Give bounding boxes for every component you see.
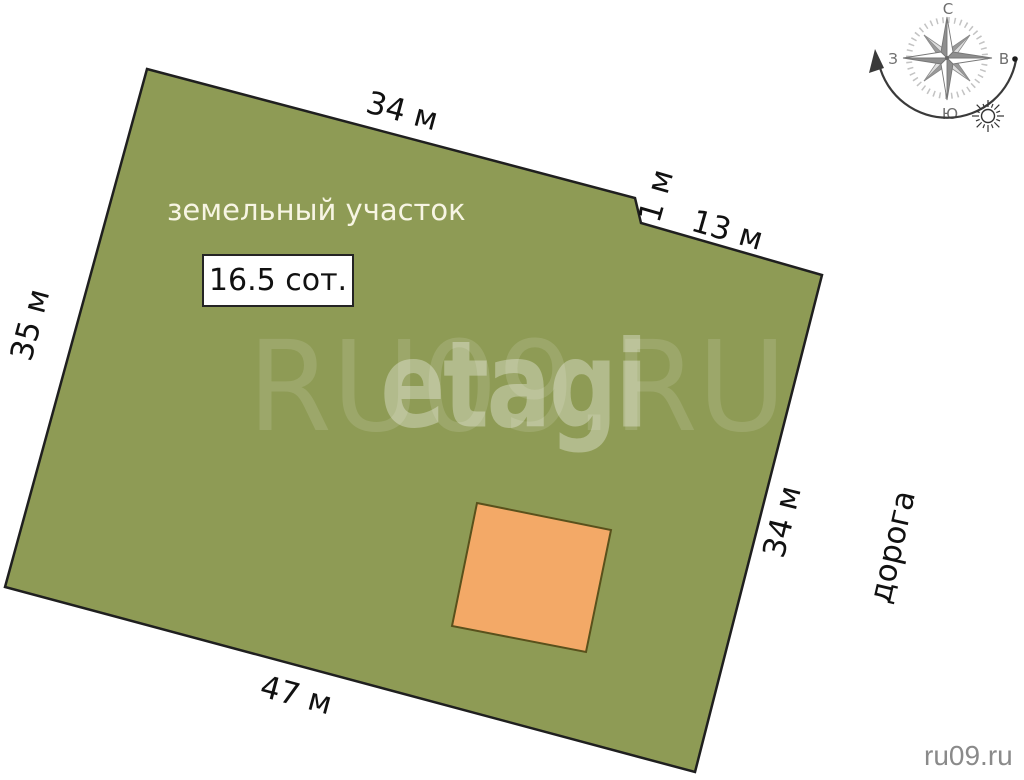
- compass-east-label: В: [999, 50, 1009, 68]
- sun-icon: [972, 100, 1004, 132]
- arrow-head: [869, 49, 884, 73]
- compass-west-label: З: [888, 50, 898, 68]
- compass-star: [903, 17, 992, 100]
- site-plan-drawing: С В З Ю: [0, 0, 1024, 780]
- compass-north-label: С: [943, 0, 953, 18]
- plot-polygon: [5, 69, 822, 772]
- site-credit: ru09.ru: [924, 740, 1013, 772]
- plot-name-label: земельный участок: [167, 195, 466, 227]
- area-badge-value: 16.5 сот.: [209, 263, 347, 298]
- compass-rose: С В З Ю: [869, 0, 1018, 132]
- area-badge: 16.5 сот.: [202, 254, 354, 307]
- compass-south-label: Ю: [942, 105, 958, 123]
- site-plan-page: С В З Ю: [0, 0, 1024, 780]
- building-footprint: [452, 503, 611, 652]
- arrow-start-dot: [1012, 56, 1018, 62]
